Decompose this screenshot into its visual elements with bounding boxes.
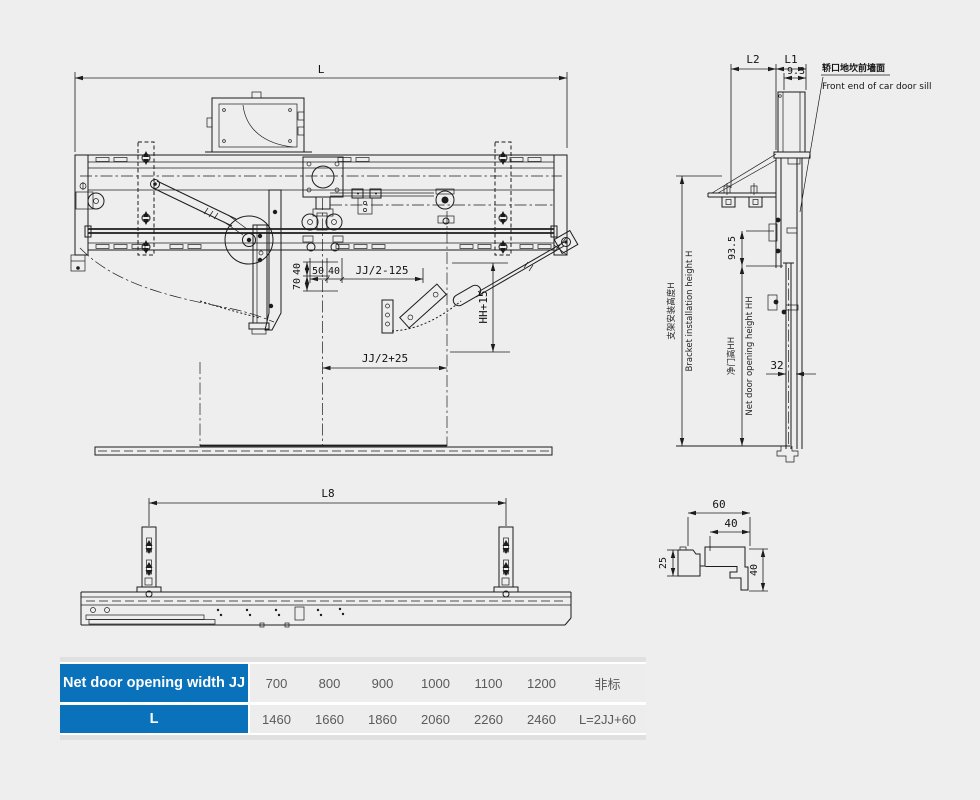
l-value: 1860 — [356, 705, 409, 733]
svg-text:40: 40 — [724, 517, 737, 530]
dim-hh15: HH+15 — [450, 263, 510, 352]
l-value: 2260 — [462, 705, 515, 733]
svg-text:40: 40 — [749, 564, 760, 576]
svg-text:40: 40 — [292, 263, 303, 275]
svg-text:JJ/2+25: JJ/2+25 — [362, 352, 408, 365]
dim-L8: L8 — [149, 487, 506, 526]
svg-text:9.3: 9.3 — [787, 66, 805, 77]
table-row-jj: Net door opening width JJ 700 800 900 10… — [60, 664, 646, 702]
svg-text:50: 50 — [312, 266, 324, 277]
l-value: 1460 — [250, 705, 303, 733]
sill-callout: 轿口地坎前墙面 Front end of car door sill — [800, 62, 931, 212]
door-hanger-plate — [249, 190, 281, 334]
cam-wheel — [225, 216, 273, 264]
hanger-bracket-left — [138, 142, 154, 255]
svg-text:32: 32 — [770, 359, 783, 372]
bolt-symbols — [142, 151, 150, 254]
svg-text:70: 70 — [292, 278, 303, 290]
height-label-en: Bracket installation height H — [685, 251, 695, 372]
svg-text:93.5: 93.5 — [727, 236, 738, 260]
height-label-cn: 支架安装高度H — [666, 282, 677, 339]
dim-L2: L2 — [731, 53, 776, 69]
mounting-slots — [96, 158, 551, 249]
svg-text:L1: L1 — [784, 53, 797, 66]
svg-text:L8: L8 — [321, 487, 334, 500]
jj-value: 1200 — [515, 664, 568, 702]
svg-text:40: 40 — [328, 266, 340, 277]
sill-extrusion-profile — [678, 547, 748, 590]
table-row-l: L 1460 1660 1860 2060 2260 2460 L=2JJ+60 — [60, 705, 646, 733]
beam-end-cap-left — [75, 155, 88, 255]
pulley-center-left — [302, 214, 318, 230]
jj-value: 1100 — [462, 664, 515, 702]
jj-value: 800 — [303, 664, 356, 702]
tilted-link-bracket — [400, 284, 447, 328]
belt-clamp — [330, 189, 434, 214]
cable-bracket — [382, 300, 393, 333]
l-value: 2060 — [409, 705, 462, 733]
l-value-formula: L=2JJ+60 — [568, 705, 647, 733]
drawing-sheet: { "page": { "background": "#eeeeee", "li… — [0, 0, 980, 800]
front-view: L — [71, 63, 578, 455]
wall-bracket-right — [494, 527, 518, 597]
svg-text:60: 60 — [712, 498, 725, 511]
jj-value: 900 — [356, 664, 409, 702]
svg-text:25: 25 — [658, 557, 669, 569]
side-structure — [768, 158, 802, 449]
car-sill-profile — [777, 446, 798, 462]
leader-line — [800, 77, 823, 212]
size-table: Net door opening width JJ 700 800 900 10… — [60, 657, 646, 740]
motor-circle — [312, 166, 334, 188]
dim-jj-plus: JJ/2+25 — [323, 352, 448, 368]
dim-L-label: L — [318, 63, 325, 76]
l-value: 1660 — [303, 705, 356, 733]
dim-60: 60 — [688, 498, 750, 546]
landing-sill — [95, 446, 552, 456]
opening-label-cn: 净门高HH — [726, 337, 737, 375]
row-header-l: L — [60, 705, 248, 733]
cad-drawing: L — [0, 0, 980, 655]
l-value: 2460 — [515, 705, 568, 733]
jj-value: 1000 — [409, 664, 462, 702]
svg-text:JJ/2-125: JJ/2-125 — [356, 264, 409, 277]
safety-edge-rod — [451, 231, 578, 308]
side-view: L2 L1 9.3 轿口地坎前墙面 Front end of car door … — [666, 53, 931, 462]
wall-bracket-left — [137, 527, 161, 597]
dim-H: 支架安装高度H Bracket installation height H — [666, 176, 722, 446]
controller-box — [205, 92, 312, 152]
section-view: 60 40 25 40 — [658, 498, 768, 591]
wall-bracket — [708, 154, 776, 207]
svg-text:L2: L2 — [746, 53, 759, 66]
side-controller-box — [774, 92, 810, 158]
sill-label-cn: 轿口地坎前墙面 — [822, 62, 885, 74]
beam-elevation — [81, 592, 571, 627]
beam-end-cap-right — [554, 155, 567, 255]
dim-jj-minus: 50 40 JJ/2-125 — [310, 258, 423, 283]
pulley-right — [436, 189, 454, 224]
cable-detail — [200, 301, 260, 318]
dim-HH: 净门高HH Net door opening height HH — [726, 266, 755, 446]
svg-text:HH+15: HH+15 — [477, 290, 490, 323]
beam-fastener-marks — [217, 607, 344, 627]
drive-arm — [151, 180, 248, 236]
pulley-center-right — [326, 214, 342, 230]
jj-value: 700 — [250, 664, 303, 702]
dim-9-3: 9.3 — [784, 66, 806, 78]
bottom-view: L8 — [81, 487, 571, 627]
sill-label-en: Front end of car door sill — [822, 82, 931, 92]
dim-40-side: 40 — [749, 549, 768, 591]
door-swing-arc — [243, 105, 293, 147]
dim-40-top: 40 — [710, 517, 750, 551]
jj-value-nonstandard: 非标 — [568, 664, 647, 702]
hanger-bracket-right — [495, 142, 511, 255]
dim-93-5: 93.5 — [727, 231, 783, 266]
opening-label-en: Net door opening height HH — [745, 296, 755, 415]
row-header-jj: Net door opening width JJ — [60, 664, 248, 702]
pulley-left — [76, 182, 104, 209]
motor-plate — [303, 157, 343, 197]
door-cable — [80, 248, 274, 322]
safety-edge-cable — [392, 301, 461, 331]
